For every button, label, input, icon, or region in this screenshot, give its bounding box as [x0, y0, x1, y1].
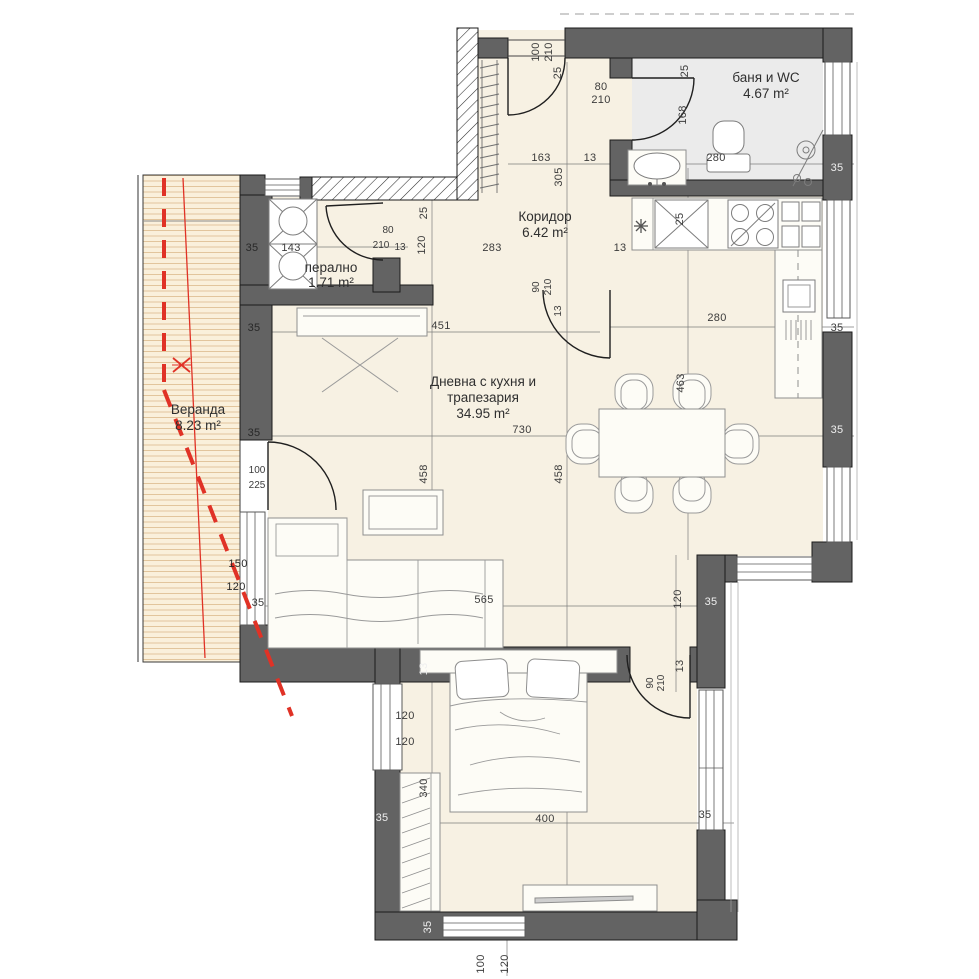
- dim-label: 163: [531, 152, 550, 164]
- bedroom-bottom-window: [443, 916, 525, 937]
- dim-label: 35: [831, 322, 844, 334]
- dining-bottom-window: [737, 557, 812, 580]
- dim-label: 25: [679, 65, 691, 78]
- dim-label: 120: [672, 589, 684, 608]
- dim-label: 35: [831, 424, 844, 436]
- wall-bath-left-upper: [610, 58, 632, 78]
- wall-laundry-door-nub: [373, 258, 400, 292]
- dim-label: 13: [674, 660, 686, 673]
- wall-left-upper: [240, 195, 272, 440]
- dim-label: 13: [584, 152, 597, 164]
- toilet: [707, 121, 750, 172]
- wall-right-2: [823, 332, 852, 467]
- wall-top-right-corner: [823, 28, 852, 62]
- bathroom-label: баня и WC: [732, 70, 799, 85]
- dim-label: 100: [475, 954, 487, 973]
- dim-label: 35: [376, 812, 389, 824]
- dim-label: 168: [677, 105, 689, 124]
- headboard: [420, 650, 617, 673]
- dim-label: 13: [394, 242, 406, 253]
- dim-label: 280: [706, 152, 725, 164]
- dim-label: 35: [699, 809, 712, 821]
- dining-side-window: [827, 467, 850, 542]
- dim-label: 120: [499, 954, 511, 973]
- bedroom-left-window: [373, 684, 402, 770]
- laundry-window: [265, 179, 300, 196]
- wall-top-left-nub: [478, 38, 508, 58]
- dim-label: 90: [645, 677, 656, 689]
- dim-label: 305: [553, 167, 565, 186]
- floor-plan-canvas: баня и WC 4.67 m² Коридор 6.42 m² пералн…: [0, 0, 979, 979]
- dim-label: 35: [246, 242, 259, 254]
- bathroom-area: 4.67 m²: [743, 86, 789, 101]
- dim-label: 120: [226, 581, 245, 593]
- dim-label: 13: [614, 242, 627, 254]
- dim-label: 35: [705, 596, 718, 608]
- dim-label: 13: [418, 663, 430, 676]
- floor-plan-page: баня и WC 4.67 m² Коридор 6.42 m² пералн…: [0, 0, 979, 979]
- dim-label: 150: [228, 558, 247, 570]
- coffee-table: [363, 490, 443, 535]
- dim-label: 565: [474, 594, 493, 606]
- wall-hatched-horizontal: [312, 177, 457, 200]
- wall-top: [565, 28, 852, 58]
- dim-label: 25: [552, 67, 564, 80]
- corridor-area: 6.42 m²: [522, 225, 568, 240]
- tv-dresser: [523, 885, 657, 911]
- dim-label: 90: [531, 281, 542, 293]
- dim-label: 35: [248, 322, 261, 334]
- dim-label: 458: [418, 464, 430, 483]
- dim-label: 210: [591, 94, 610, 106]
- dim-label: 100: [530, 42, 542, 61]
- living-label-2: трапезария: [447, 390, 519, 405]
- dim-label: 210: [543, 278, 554, 295]
- dim-label: 210: [656, 674, 667, 691]
- dim-label: 143: [281, 242, 300, 254]
- wall-bedroom-right-upper: [697, 555, 725, 688]
- dim-label: 210: [543, 42, 555, 61]
- wall-right-corner: [812, 542, 852, 582]
- wall-hatched-vertical: [457, 28, 478, 200]
- kitchen-tall-unit: [775, 250, 822, 398]
- boiler-icon: [634, 219, 648, 233]
- dining-table: [599, 409, 725, 477]
- bathroom-window: [825, 62, 850, 135]
- dim-label: 100: [249, 465, 266, 476]
- dim-label: 80: [595, 81, 608, 93]
- dim-label: 35: [422, 921, 434, 934]
- sink: [628, 150, 686, 186]
- stove: [728, 200, 778, 248]
- laundry-label: перално: [305, 260, 358, 275]
- dim-label: 35: [252, 597, 265, 609]
- living-area: 34.95 m²: [456, 406, 510, 421]
- dim-label: 35: [248, 427, 261, 439]
- dim-label: 25: [418, 207, 430, 220]
- corridor-label: Коридор: [518, 209, 571, 224]
- dim-label: 225: [249, 480, 266, 491]
- veranda-label: Веранда: [171, 402, 226, 417]
- dim-label: 80: [382, 225, 394, 236]
- dim-label: 451: [431, 320, 450, 332]
- wall-nub: [300, 177, 312, 200]
- dim-label: 120: [395, 736, 414, 748]
- dim-label: 280: [707, 312, 726, 324]
- dim-label: 210: [373, 240, 390, 251]
- dim-label: 340: [418, 778, 430, 797]
- dim-label: 400: [535, 813, 554, 825]
- dim-label: 120: [395, 710, 414, 722]
- dim-label: 283: [482, 242, 501, 254]
- dim-label: 120: [416, 235, 428, 254]
- dim-label: 463: [675, 373, 687, 392]
- dim-label: 25: [674, 213, 686, 226]
- laundry-area: 1.71 m²: [308, 275, 354, 290]
- dim-label: 458: [553, 464, 565, 483]
- dim-label: 13: [553, 305, 564, 317]
- living-label-1: Дневна с кухня и: [430, 374, 536, 389]
- dim-label: 730: [512, 424, 531, 436]
- veranda-area: 8.23 m²: [175, 418, 221, 433]
- kitchen-window: [827, 200, 850, 318]
- bed: [420, 650, 617, 812]
- dim-label: 35: [831, 162, 844, 174]
